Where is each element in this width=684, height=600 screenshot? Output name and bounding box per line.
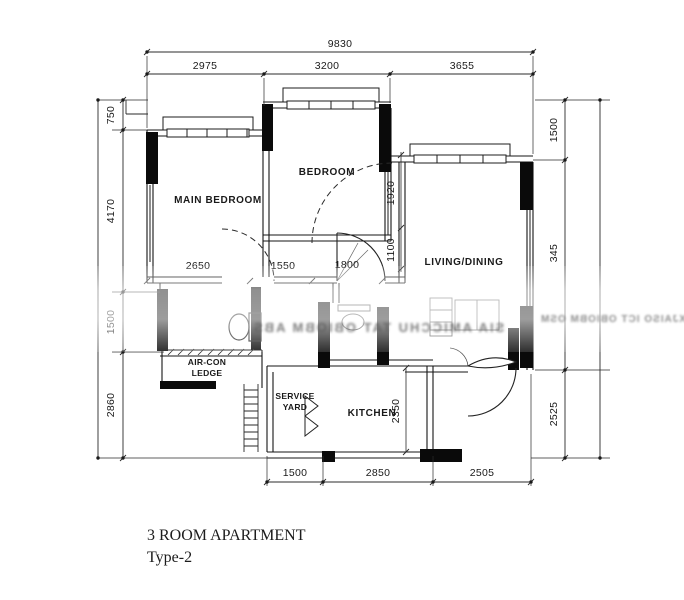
label-living-dining: LIVING/DINING: [425, 257, 504, 268]
floor-plan-scan: 9830 2975 3200 3655 750 4170 1500 2860 1…: [0, 0, 684, 600]
dim-left-2: 4170: [105, 199, 117, 224]
dim-bedroom-wall: 1920: [385, 181, 397, 206]
floor-plan-drawing: 9830 2975 3200 3655 750 4170 1500 2860 1…: [0, 0, 684, 600]
bay-window-main-bedroom: [163, 117, 253, 137]
kitchen-counter: [430, 298, 499, 336]
dim-recess: 1100: [385, 238, 397, 262]
dim-right-1: 1500: [548, 118, 560, 143]
label-bedroom: BEDROOM: [299, 167, 355, 178]
label-service-yard-2: YARD: [283, 402, 308, 412]
label-main-bedroom: MAIN BEDROOM: [174, 195, 262, 206]
dim-left-1: 750: [105, 106, 117, 124]
dim-right-3: 2525: [548, 402, 560, 427]
door-main-bedroom: [222, 229, 274, 281]
basin-fixture: [338, 305, 370, 330]
dim-bottom-2: 2850: [366, 467, 391, 479]
dim-corridor: 1550: [271, 260, 296, 272]
top-left-step: [126, 100, 148, 114]
dimensions-left: [96, 97, 267, 461]
dim-bottom-1: 1500: [283, 467, 308, 479]
bay-window-living: [410, 144, 510, 163]
label-kitchen: KITCHEN: [348, 408, 397, 419]
dim-top-2: 3200: [315, 60, 340, 72]
bay-window-bedroom: [283, 88, 379, 109]
dim-top-1: 2975: [193, 60, 218, 72]
dim-top-3: 3655: [450, 60, 475, 72]
label-aircon-2: LEDGE: [192, 368, 223, 378]
plan-subtitle: Type-2: [147, 549, 192, 566]
dim-bath-door: 1800: [335, 259, 360, 271]
label-aircon-1: AIR-CON: [188, 357, 226, 367]
dim-top-total: 9830: [328, 38, 353, 50]
dim-left-4: 2860: [105, 393, 117, 418]
service-yard-louvres: [244, 384, 258, 452]
dim-left-3: 1500: [105, 310, 117, 335]
plan-title: 3 ROOM APARTMENT: [147, 527, 306, 544]
door-main-entrance: [450, 348, 516, 416]
door-bathroom: [337, 233, 385, 281]
dim-bottom-3: 2505: [470, 467, 495, 479]
dimensions-right: [531, 97, 610, 461]
wall-windows: [150, 172, 530, 306]
dim-mainbedroom-width: 2650: [186, 260, 211, 272]
label-service-yard-1: SERVICE: [275, 391, 314, 401]
dim-right-2: 345: [548, 244, 560, 262]
